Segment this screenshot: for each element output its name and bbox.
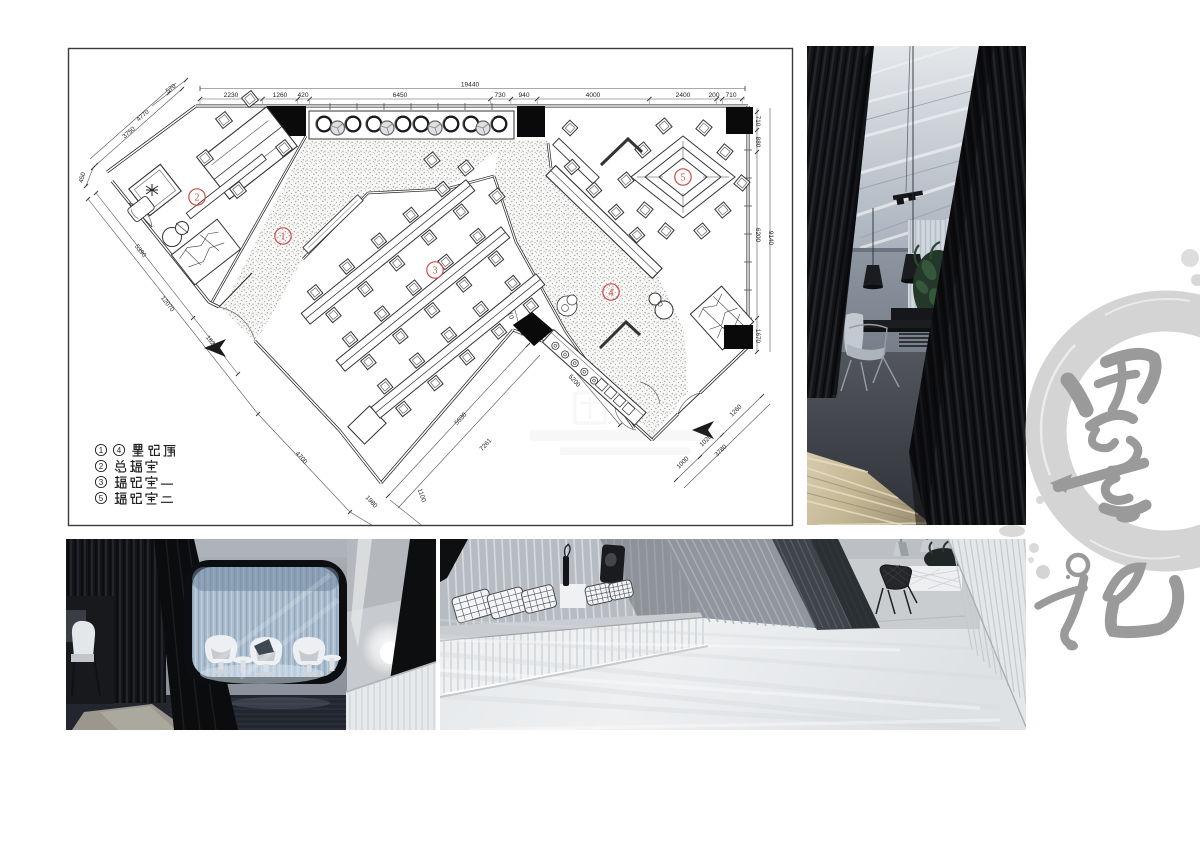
svg-text:1670: 1670 xyxy=(754,329,761,344)
svg-text:19440: 19440 xyxy=(461,82,480,89)
svg-text:1: 1 xyxy=(281,231,286,242)
svg-text:5: 5 xyxy=(681,172,686,183)
svg-text:9140: 9140 xyxy=(767,231,774,246)
svg-text:3: 3 xyxy=(99,478,104,487)
svg-text:420: 420 xyxy=(297,92,308,99)
svg-text:4000: 4000 xyxy=(586,92,601,99)
svg-text:6200: 6200 xyxy=(754,228,761,243)
svg-text:710: 710 xyxy=(725,92,736,99)
svg-text:2400: 2400 xyxy=(676,92,691,99)
svg-text:6450: 6450 xyxy=(393,92,408,99)
svg-text:5: 5 xyxy=(99,494,104,503)
svg-text:4: 4 xyxy=(609,287,614,298)
svg-text:4: 4 xyxy=(117,446,122,455)
svg-text:730: 730 xyxy=(494,92,505,99)
svg-text:940: 940 xyxy=(518,92,529,99)
svg-text:2: 2 xyxy=(195,192,200,203)
svg-text:1: 1 xyxy=(99,446,104,455)
svg-text:880: 880 xyxy=(754,137,761,148)
svg-text:2230: 2230 xyxy=(224,92,239,99)
svg-text:710: 710 xyxy=(754,116,761,127)
svg-text:200: 200 xyxy=(708,92,719,99)
svg-text:1260: 1260 xyxy=(273,92,288,99)
svg-text:2: 2 xyxy=(99,462,104,471)
svg-text:3: 3 xyxy=(433,265,438,276)
